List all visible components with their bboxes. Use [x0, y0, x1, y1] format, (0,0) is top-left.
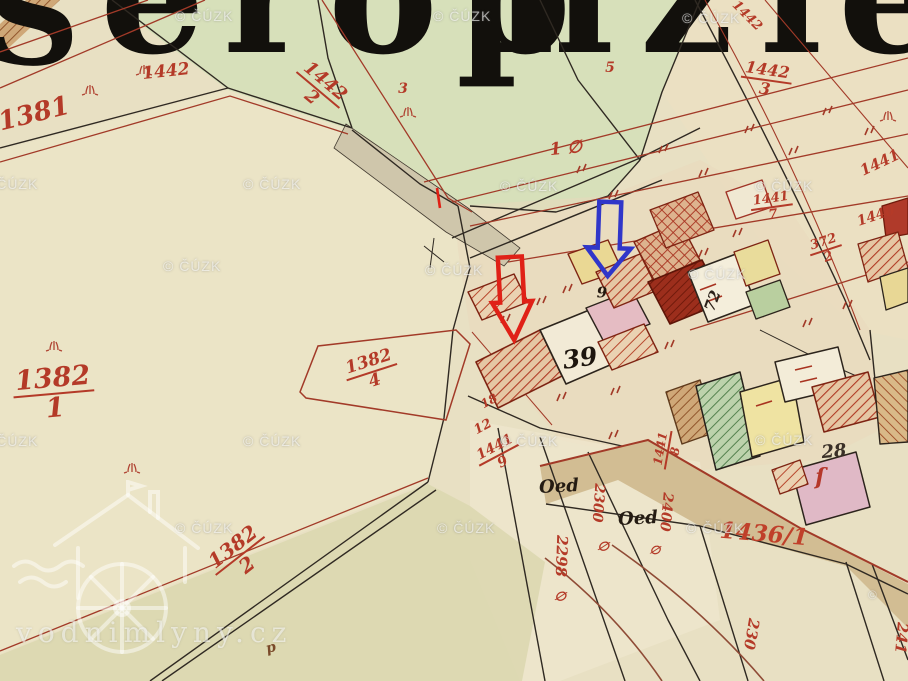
map-canvas[interactable]: Seröpnzie	[0, 0, 908, 681]
red-arrow	[490, 256, 534, 341]
annotation-arrows	[0, 0, 908, 681]
blue-arrow	[586, 201, 633, 276]
